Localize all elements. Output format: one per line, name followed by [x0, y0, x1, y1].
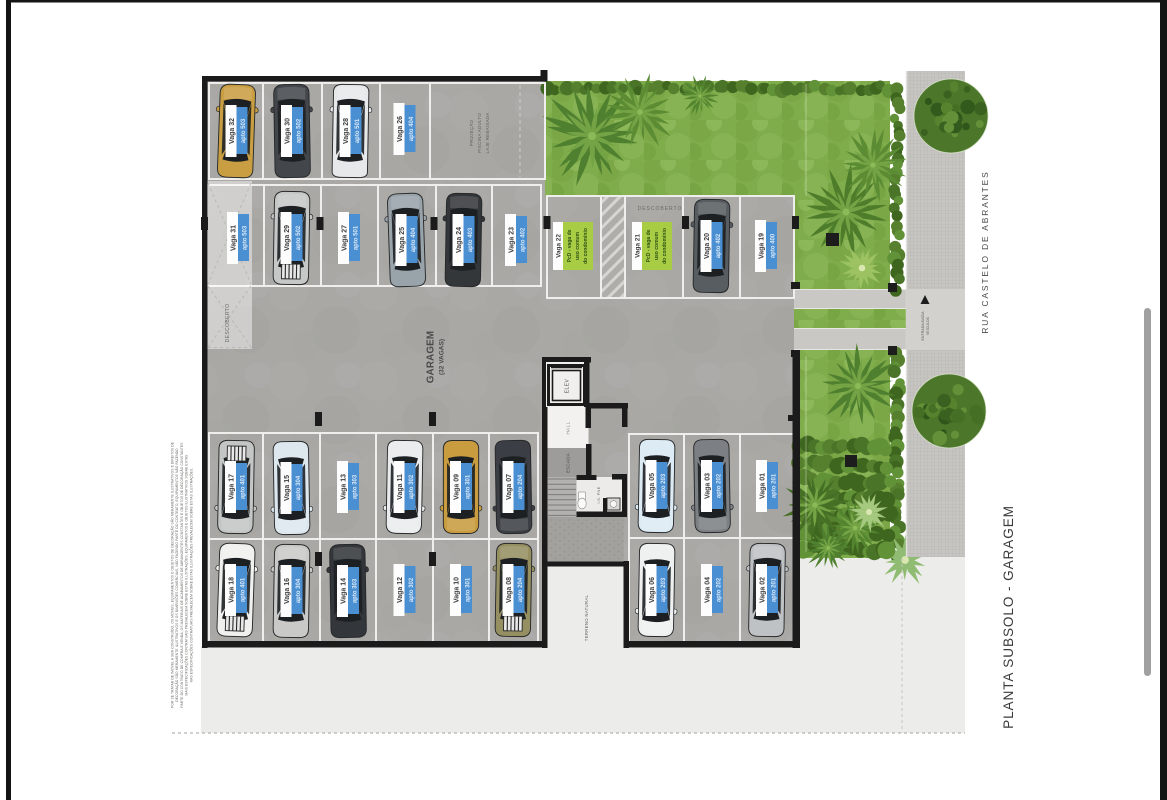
svg-text:Vaga 31: Vaga 31: [230, 225, 237, 251]
svg-text:apto 301: apto 301: [466, 474, 472, 499]
svg-text:Vaga 04: Vaga 04: [704, 577, 711, 603]
svg-text:DECORAÇÃO SÃO MERAMENTE ILUSTR: DECORAÇÃO SÃO MERAMENTE ILUSTRATIVOS E O…: [174, 448, 179, 702]
svg-text:apto 204: apto 204: [518, 577, 524, 602]
svg-text:apto 302: apto 302: [409, 474, 415, 499]
svg-text:Vaga 08: Vaga 08: [506, 577, 513, 603]
svg-text:apto 202: apto 202: [717, 577, 723, 602]
svg-text:Vaga 05: Vaga 05: [649, 473, 656, 499]
svg-text:apto 202: apto 202: [717, 473, 723, 498]
svg-text:PLANTA SUBSOLO - GARAGEM: PLANTA SUBSOLO - GARAGEM: [1001, 505, 1016, 729]
svg-text:Vaga 12: Vaga 12: [397, 577, 404, 603]
svg-text:Vaga 03: Vaga 03: [704, 473, 711, 499]
svg-text:PISCINA ADULTO: PISCINA ADULTO: [477, 113, 482, 153]
svg-text:apto 203: apto 203: [661, 577, 667, 602]
svg-text:apto 501: apto 501: [354, 225, 360, 250]
svg-text:Vaga 18: Vaga 18: [228, 577, 235, 603]
svg-text:NAS ESPECIFICAÇÕES CONTRATUAIS: NAS ESPECIFICAÇÕES CONTRATUAIS PREVALECE…: [188, 468, 193, 683]
svg-text:PcD - vaga de: PcD - vaga de: [567, 229, 573, 262]
svg-text:Vaga 24: Vaga 24: [456, 227, 463, 253]
svg-text:apto 502: apto 502: [296, 225, 302, 250]
svg-text:do condomínio: do condomínio: [662, 228, 668, 264]
svg-text:ELEV: ELEV: [565, 379, 571, 394]
svg-text:ENTRADA/SAÍDA: ENTRADA/SAÍDA: [921, 311, 925, 341]
svg-text:apto 201: apto 201: [772, 473, 778, 498]
svg-text:apto 402: apto 402: [521, 227, 527, 252]
svg-text:MAIS ESPECIFICAÇÕES CONTRATUAI: MAIS ESPECIFICAÇÕES CONTRATUAIS PREVALEC…: [184, 454, 189, 696]
svg-text:apto 404: apto 404: [411, 227, 417, 252]
svg-text:DESCOBERTO: DESCOBERTO: [638, 206, 683, 212]
svg-text:apto 501: apto 501: [355, 118, 361, 143]
svg-text:Vaga 15: Vaga 15: [284, 475, 291, 501]
svg-text:apto 401: apto 401: [241, 474, 247, 499]
svg-text:I.S. PNE: I.S. PNE: [596, 486, 601, 503]
svg-text:Vaga 32: Vaga 32: [229, 118, 236, 144]
svg-text:Vaga 25: Vaga 25: [399, 227, 406, 253]
svg-text:(32 VAGAS): (32 VAGAS): [439, 339, 446, 375]
svg-text:apto 304: apto 304: [296, 578, 302, 603]
svg-text:Vaga 01: Vaga 01: [759, 473, 766, 499]
svg-text:apto 204: apto 204: [518, 474, 524, 499]
svg-text:TERRENO NATURAL: TERRENO NATURAL: [584, 594, 589, 641]
svg-text:apto 404: apto 404: [409, 116, 415, 141]
svg-text:apto 402: apto 402: [716, 233, 722, 258]
svg-text:POR SE TRATAR DE IMÓVEL A SER: POR SE TRATAR DE IMÓVEL A SER CONSTRUÍDO…: [170, 441, 175, 708]
svg-text:uso comum: uso comum: [654, 231, 660, 260]
svg-text:Vaga 20: Vaga 20: [704, 233, 711, 259]
svg-text:apto 303: apto 303: [353, 474, 359, 499]
svg-text:apto 301: apto 301: [466, 577, 472, 602]
svg-text:Vaga 07: Vaga 07: [506, 474, 513, 500]
svg-text:Vaga 28: Vaga 28: [343, 118, 350, 144]
svg-text:Vaga 11: Vaga 11: [397, 474, 404, 500]
svg-text:RUA CASTELO DE ABRANTES: RUA CASTELO DE ABRANTES: [980, 170, 990, 333]
svg-text:apto 304: apto 304: [296, 475, 302, 500]
svg-text:Vaga 06: Vaga 06: [649, 577, 656, 603]
svg-text:apto 503: apto 503: [241, 118, 247, 143]
svg-text:apto 503: apto 503: [243, 225, 249, 250]
svg-text:Vaga 29: Vaga 29: [284, 225, 291, 251]
svg-text:apto 302: apto 302: [409, 577, 415, 602]
svg-text:PcD - vaga de: PcD - vaga de: [646, 229, 652, 262]
svg-text:Vaga 09: Vaga 09: [453, 474, 460, 500]
svg-text:Vaga 23: Vaga 23: [508, 227, 515, 253]
svg-text:GARAGEM: GARAGEM: [426, 331, 437, 384]
svg-text:Vaga 22: Vaga 22: [556, 234, 563, 258]
svg-text:do condomínio: do condomínio: [583, 228, 589, 264]
svg-text:Vaga 10: Vaga 10: [453, 577, 460, 603]
svg-text:Vaga 30: Vaga 30: [284, 118, 291, 144]
svg-text:Vaga 27: Vaga 27: [341, 225, 348, 251]
svg-text:uso comum: uso comum: [575, 231, 581, 260]
svg-text:ESCADA: ESCADA: [566, 453, 571, 473]
svg-text:apto 403: apto 403: [468, 227, 474, 252]
svg-text:Vaga 16: Vaga 16: [284, 578, 291, 604]
svg-text:PARTE DO CONTRATO DE COMPRA E: PARTE DO CONTRATO DE COMPRA E VENDA, OS …: [179, 442, 184, 708]
svg-text:Vaga 14: Vaga 14: [340, 578, 347, 604]
svg-text:apto 201: apto 201: [772, 577, 778, 602]
svg-text:Vaga 02: Vaga 02: [759, 577, 766, 603]
svg-text:apto 203: apto 203: [661, 473, 667, 498]
svg-text:VEÍCULOS: VEÍCULOS: [926, 316, 930, 335]
svg-text:apto 401: apto 401: [241, 577, 247, 602]
svg-text:Vaga 26: Vaga 26: [397, 116, 404, 142]
svg-text:DESCOBERTO: DESCOBERTO: [225, 304, 231, 343]
svg-text:Vaga 19: Vaga 19: [758, 233, 765, 259]
svg-text:Vaga 13: Vaga 13: [340, 474, 347, 500]
svg-text:apto 400: apto 400: [771, 233, 777, 258]
svg-text:PROJEÇÃO: PROJEÇÃO: [469, 119, 474, 146]
svg-text:Vaga 21: Vaga 21: [635, 234, 642, 258]
svg-text:LAJE REBAIXADA: LAJE REBAIXADA: [485, 112, 490, 153]
svg-text:Vaga 17: Vaga 17: [228, 474, 235, 500]
svg-text:apto 303: apto 303: [353, 578, 359, 603]
svg-text:HALL: HALL: [566, 421, 571, 434]
svg-text:apto 502: apto 502: [297, 118, 303, 143]
